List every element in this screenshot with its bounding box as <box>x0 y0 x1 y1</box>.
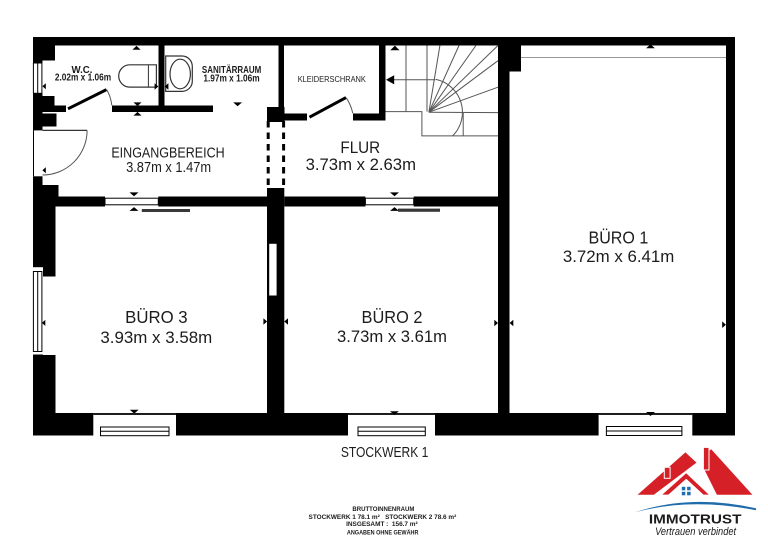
svg-text:3.72m x 6.41m: 3.72m x 6.41m <box>563 247 675 266</box>
svg-text:3.73m x 3.61m: 3.73m x 3.61m <box>337 327 447 346</box>
svg-text:3.93m x 3.58m: 3.93m x 3.58m <box>100 328 212 347</box>
svg-text:Vertrauen verbindet: Vertrauen verbindet <box>655 526 737 538</box>
svg-text:IMMOTRUST: IMMOTRUST <box>649 512 742 527</box>
svg-text:KLEIDERSCHRANK: KLEIDERSCHRANK <box>298 75 367 84</box>
svg-text:BÜRO 2: BÜRO 2 <box>362 307 423 327</box>
svg-text:2.02m x 1.06m: 2.02m x 1.06m <box>55 73 111 84</box>
svg-text:INSGESAMT : 156.7 m²: INSGESAMT : 156.7 m² <box>346 521 418 528</box>
svg-text:BÜRO 3: BÜRO 3 <box>125 307 188 327</box>
svg-text:BÜRO 1: BÜRO 1 <box>589 227 649 247</box>
svg-text:STOCKWERK 1 78.1 m² STOCKWER: STOCKWERK 1 78.1 m² STOCKWERK 2 78.6 m² <box>309 514 457 521</box>
svg-text:ANGABEN OHNE GEWÄHR: ANGABEN OHNE GEWÄHR <box>347 529 419 536</box>
svg-text:1.97m x 1.06m: 1.97m x 1.06m <box>203 73 259 84</box>
svg-text:BRUTTOINNENRAUM: BRUTTOINNENRAUM <box>352 506 414 513</box>
svg-text:STOCKWERK 1: STOCKWERK 1 <box>341 444 429 461</box>
svg-text:3.87m x 1.47m: 3.87m x 1.47m <box>126 160 211 176</box>
svg-text:3.73m x 2.63m: 3.73m x 2.63m <box>306 155 416 174</box>
